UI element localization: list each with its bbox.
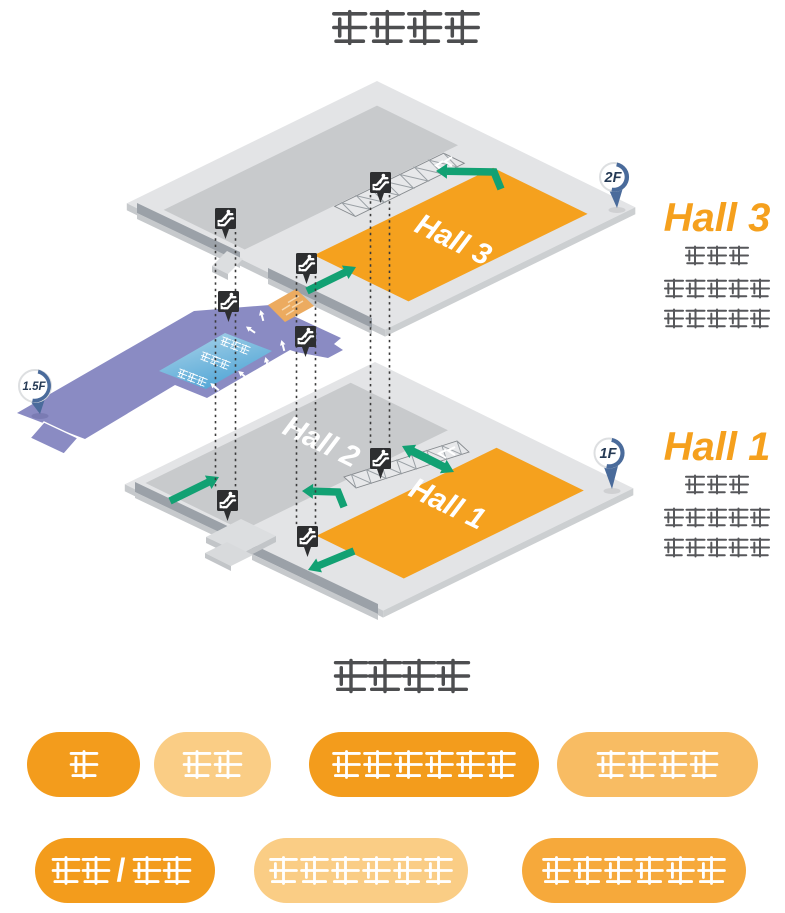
- svg-text:/: /: [117, 852, 126, 888]
- svg-text:1F: 1F: [600, 446, 618, 462]
- svg-text:2F: 2F: [604, 170, 623, 186]
- svg-text:Hall 1: Hall 1: [664, 425, 771, 469]
- svg-text:1.5F: 1.5F: [22, 381, 46, 393]
- svg-text:Hall 3: Hall 3: [664, 196, 771, 240]
